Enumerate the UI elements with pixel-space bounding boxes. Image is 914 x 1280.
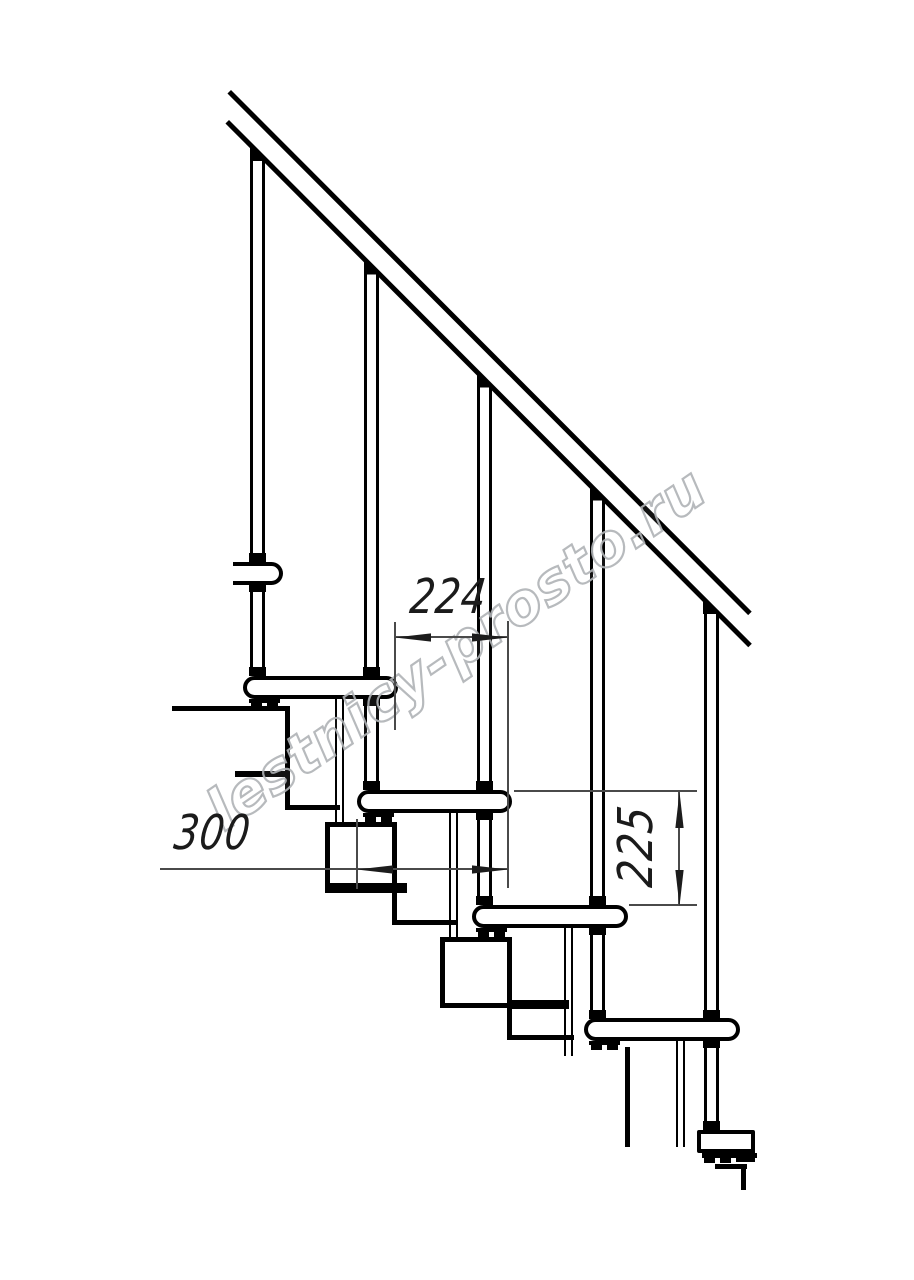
module-strut-4 (676, 1041, 685, 1147)
baluster-1 (250, 159, 265, 676)
baluster-collar (249, 553, 266, 562)
step-tread-3 (472, 905, 628, 928)
module-box-3-bottom-bar (509, 1000, 569, 1009)
baluster-collar (249, 667, 266, 676)
baluster-collar (703, 1010, 720, 1019)
step-tread-2 (357, 790, 512, 813)
dim-225-label: 225 (615, 812, 663, 889)
dim-300-line (160, 868, 508, 870)
step-support-bracket (736, 1151, 755, 1162)
baluster-collar (589, 896, 606, 905)
baluster-collar (249, 585, 266, 592)
module-box-2-bottom-bar (329, 883, 407, 893)
dim-225-arrow-down (675, 870, 684, 906)
step-support-bracket (704, 1158, 715, 1163)
step-support-bracket (251, 703, 262, 708)
staircase-technical-drawing: lestnicy-prosto.ru (0, 0, 914, 1280)
baluster-collar (476, 813, 493, 820)
dim-225-extension-bottom (629, 904, 697, 906)
step-support-bracket (267, 703, 278, 708)
module-jog-shelf-2 (392, 920, 458, 925)
step-tread-partial-bottom (697, 1130, 755, 1153)
dim-300-extension-left (356, 819, 358, 889)
baluster-collar (589, 1010, 606, 1019)
module-wall-4 (625, 1047, 630, 1147)
baluster-collar (476, 781, 493, 790)
dim-224-extension-left (394, 622, 396, 730)
step-support-bracket (494, 932, 505, 937)
dim-224-300-shared-extension (507, 621, 509, 888)
cutoff-fragment-vertical (741, 1169, 746, 1190)
step-support-bracket (478, 932, 489, 937)
baluster-3-rail-wedge (477, 373, 493, 388)
baluster-5 (704, 612, 719, 1130)
baluster-5-rail-wedge (703, 599, 719, 614)
dim-224-label: 224 (408, 576, 489, 618)
dim-225-arrow-up (675, 792, 684, 828)
module-jog-shelf-3 (507, 1035, 574, 1040)
step-tread-partial-top (233, 562, 283, 585)
step-support-bracket (607, 1045, 618, 1050)
module-box-3 (440, 937, 512, 1008)
baluster-collar (363, 781, 380, 790)
baluster-collar (476, 896, 493, 905)
step-support-bracket (720, 1158, 731, 1163)
baluster-collar (703, 1121, 720, 1130)
step-tread-4 (584, 1018, 740, 1041)
step-support-bracket (365, 817, 376, 822)
step-support-bracket (381, 817, 392, 822)
baluster-collar (589, 928, 606, 935)
baluster-collar (703, 1041, 720, 1048)
dim-225-extension-top (514, 790, 697, 792)
step-support-bracket (591, 1045, 602, 1050)
dim-300-label: 300 (172, 812, 253, 854)
